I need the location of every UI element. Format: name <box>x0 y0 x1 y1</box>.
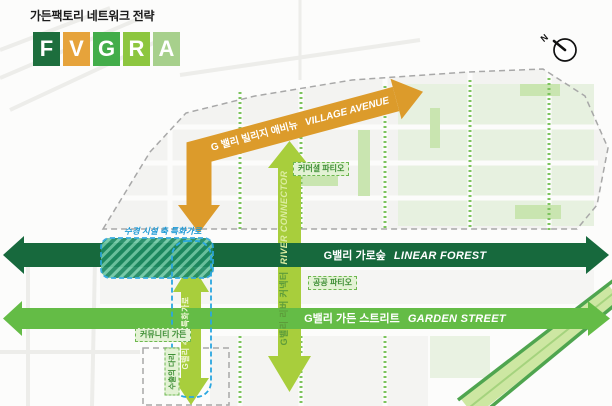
garden-street-label: G밸리 가든 스트리트 GARDEN STREET <box>295 310 515 326</box>
logo-letter-a: A <box>153 32 180 66</box>
export-bridge-label: 수출의 다리 <box>165 348 180 396</box>
garden-factory-network-map: 가든팩토리 네트워크 전략 F V G R A N G 밸리 빌리지 애비뉴 V… <box>0 0 612 406</box>
linear-forest-label: G밸리 가로숲 LINEAR FOREST <box>295 247 515 263</box>
river-connector-label: G밸리 리버 커넥터 RIVER CONNECTOR <box>277 158 301 358</box>
linear-forest-label-ko: G밸리 가로숲 <box>324 250 386 262</box>
logo-letter-v: V <box>63 32 90 66</box>
public-patio-label: 공공 파티오 <box>308 276 357 290</box>
logo-letter-r: R <box>123 32 150 66</box>
garden-street-label-ko: G밸리 가든 스트리트 <box>304 313 400 325</box>
river-connector-label-ko: G밸리 리버 커넥터 <box>279 271 289 345</box>
community-garden-label: 커뮤니티 가든 <box>135 328 191 342</box>
page-title: 가든팩토리 네트워크 전략 <box>30 7 154 24</box>
logo-letter-f: F <box>33 32 60 66</box>
commercial-patio-label: 커머셜 파티오 <box>293 162 349 176</box>
north-compass-icon <box>554 39 576 61</box>
water-feature-axis-annotation: 수경 시설 축 특화가로 <box>124 225 201 237</box>
river-connector-label-en: RIVER CONNECTOR <box>279 171 289 265</box>
linear-forest-label-en: LINEAR FOREST <box>394 250 487 262</box>
fvgra-logo: F V G R A <box>33 32 180 66</box>
garden-street-label-en: GARDEN STREET <box>408 313 506 325</box>
logo-letter-g: G <box>93 32 120 66</box>
water-feature-zone <box>101 238 213 278</box>
